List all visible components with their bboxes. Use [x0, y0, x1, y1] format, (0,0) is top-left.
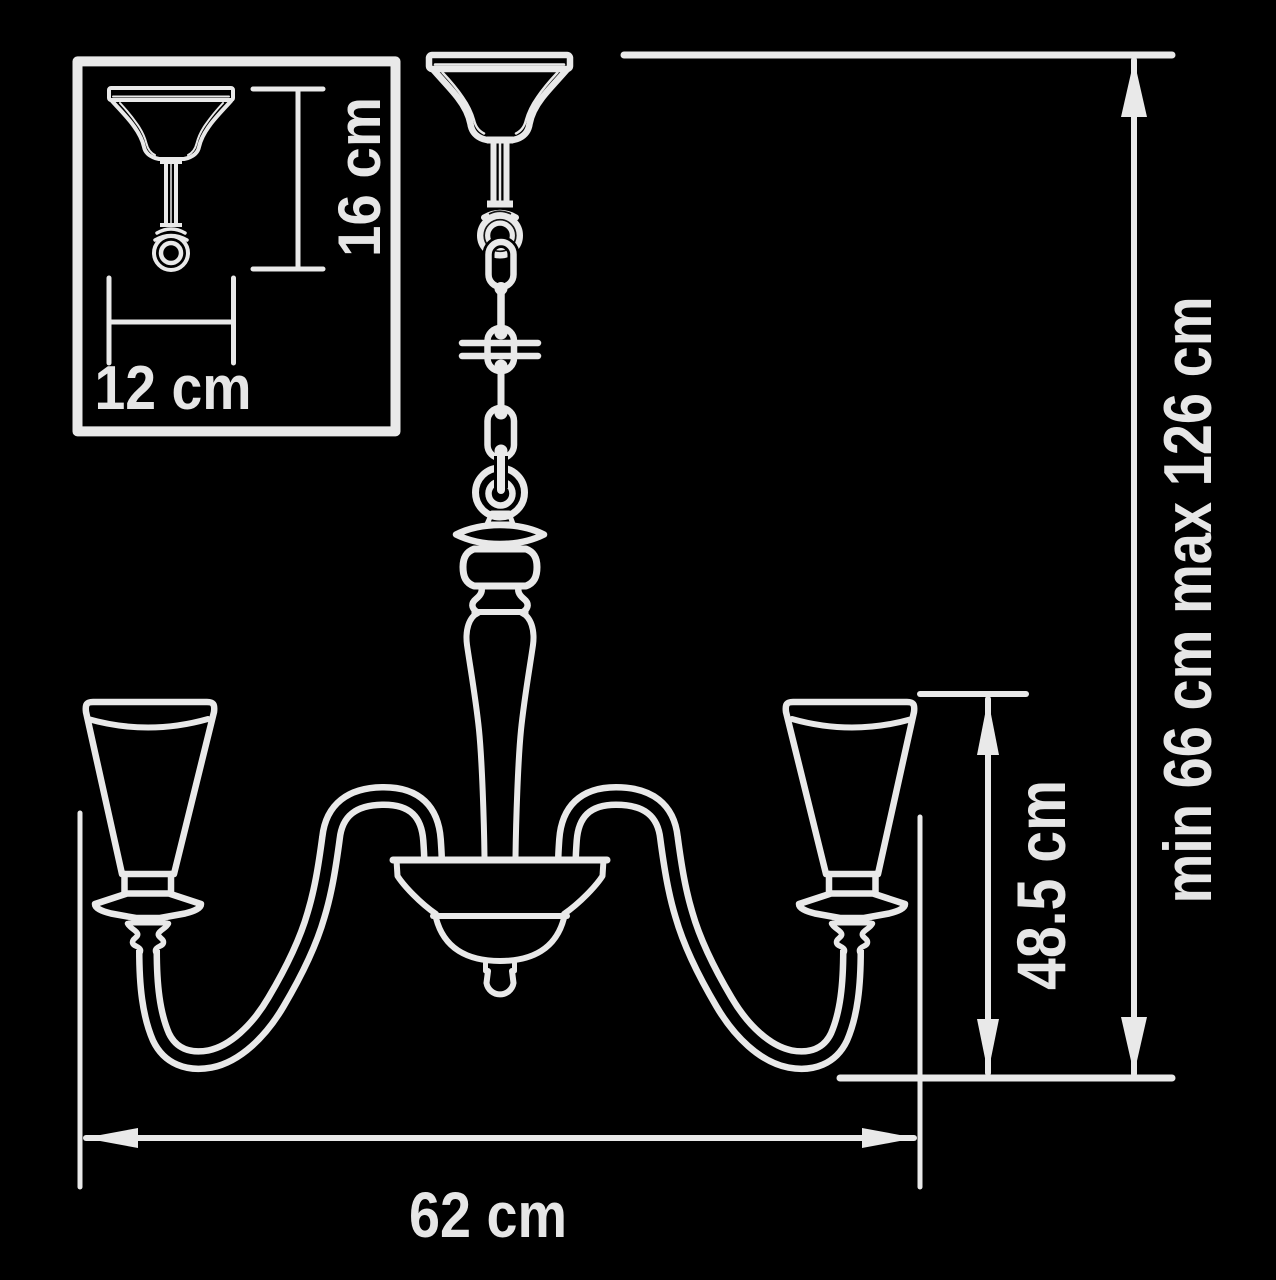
svg-text:16 cm: 16 cm — [326, 97, 393, 257]
svg-text:min 66 cm max 126 cm: min 66 cm max 126 cm — [1150, 297, 1226, 904]
svg-text:12 cm: 12 cm — [95, 354, 252, 423]
svg-text:62 cm: 62 cm — [409, 1179, 567, 1251]
svg-text:48.5 cm: 48.5 cm — [1003, 780, 1080, 990]
